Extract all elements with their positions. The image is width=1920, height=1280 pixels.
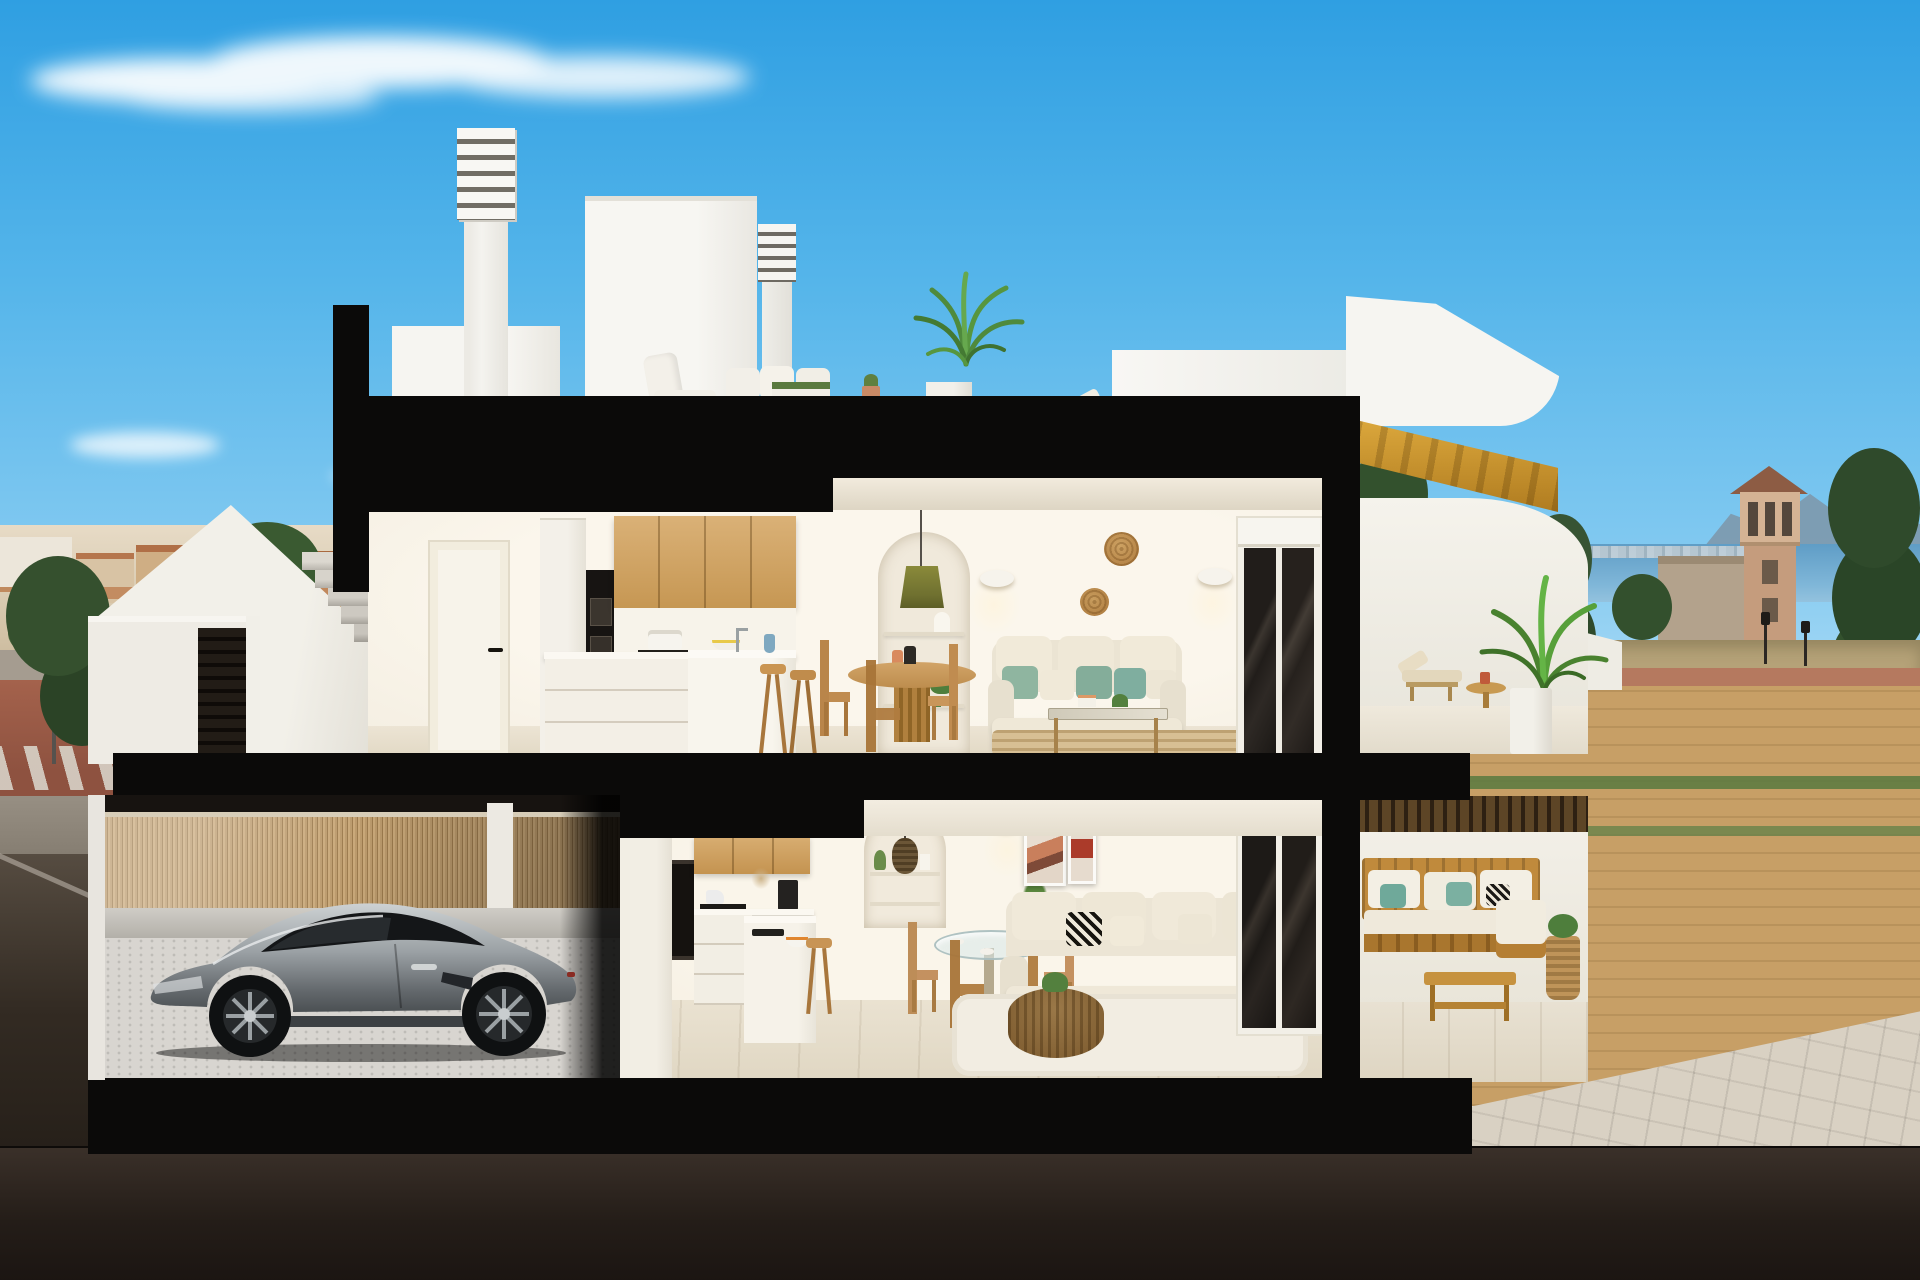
lamp-post-2 (1804, 632, 1807, 666)
rattan-basket-top (1104, 532, 1139, 566)
cut-roof-slab (333, 396, 1322, 478)
sign-pole (52, 684, 56, 764)
lamp-post-1 (1764, 624, 1767, 664)
cut-column-left (333, 305, 369, 592)
terrace-plant-basket (1546, 936, 1580, 1000)
pendant-cord (920, 510, 922, 568)
cut-mid-slab (113, 753, 1470, 800)
teal-pillow-2 (1446, 882, 1472, 906)
wooden-coffee-table-terrace (1424, 972, 1516, 1028)
cut-roof-slab-step (333, 478, 833, 512)
blue-vase (764, 634, 775, 653)
pillow-cream-4 (1178, 914, 1212, 944)
foreground-road (0, 1146, 1920, 1280)
dining-chair-a (820, 640, 850, 736)
art-frame-1 (1024, 836, 1066, 886)
cloud-main (30, 18, 770, 138)
upper-room (368, 510, 1322, 756)
tree-right-big (1828, 448, 1920, 568)
blue-traffic-sign (44, 674, 66, 696)
olive-pendant-lamp (900, 566, 944, 608)
teal-pillow-1 (1380, 884, 1406, 908)
wooden-outdoor-sofa (1362, 858, 1546, 962)
ground-ceiling-strip (862, 800, 1322, 838)
watchtower-belfry (1740, 492, 1800, 546)
upper-sliding-door (1236, 516, 1322, 756)
watchtower-roof (1730, 466, 1808, 494)
pergola-slat-band (1356, 796, 1588, 832)
pillow-cream-1 (1040, 670, 1074, 700)
rattan-coffee-table (1008, 988, 1104, 1058)
bar-stool-1 (760, 664, 786, 756)
cloud-small (70, 432, 220, 458)
oven-tower-lower (672, 860, 694, 960)
oak-upper-cabinets (614, 516, 796, 608)
tree-mid (1612, 574, 1672, 640)
dining-chair-c (866, 660, 900, 752)
terrace-floor-upper (1356, 706, 1588, 754)
chimney-shaft (464, 216, 508, 422)
cut-mid-slab-step (620, 800, 864, 838)
chimney-louver-cap (457, 128, 515, 220)
lower-sliding-door (1236, 836, 1322, 1036)
wall-sconce-2 (1198, 568, 1232, 585)
garage-left-wall-edge (88, 795, 105, 1080)
upper-door (428, 540, 510, 756)
sun-lounger (1396, 656, 1466, 706)
rattan-pendant (892, 838, 918, 874)
slatted-gate (198, 628, 248, 758)
terrace-palm (1472, 560, 1612, 700)
cutaway-house-render (0, 0, 1920, 1280)
cut-column-right (1322, 396, 1360, 1080)
tall-cabinet (620, 836, 672, 1080)
white-arch-ornament (934, 612, 950, 632)
rattan-basket-small (1080, 588, 1109, 616)
dining-chair-b (928, 644, 958, 740)
art-frame-2 (1068, 836, 1096, 884)
pillow-cream-3 (1110, 916, 1144, 946)
grass-strip-1 (1452, 776, 1920, 789)
gate-pillar (246, 616, 260, 758)
kettle (706, 890, 724, 904)
cooking-pot (648, 630, 682, 652)
dried-flowers (748, 864, 774, 912)
chimney-small-cap (758, 224, 796, 282)
faucet (736, 628, 739, 652)
watchtower-body (1744, 546, 1796, 650)
coffee-machine (778, 880, 798, 910)
stool-lower (806, 938, 832, 1016)
wall-sconce-1 (980, 570, 1014, 587)
glass-coffee-table (1048, 708, 1166, 756)
base-cabinets (545, 659, 693, 756)
bar-stool-2 (790, 670, 816, 756)
pillow-bw-1 (1066, 912, 1102, 946)
roof-palm (902, 268, 1030, 398)
terrace-palm-pot (1510, 688, 1552, 754)
pillow-green-2 (1076, 666, 1112, 699)
cut-ground-slab (88, 1078, 1472, 1154)
sports-car (143, 888, 585, 1066)
upper-soffit (833, 478, 1322, 512)
ground-room (620, 836, 1322, 1080)
